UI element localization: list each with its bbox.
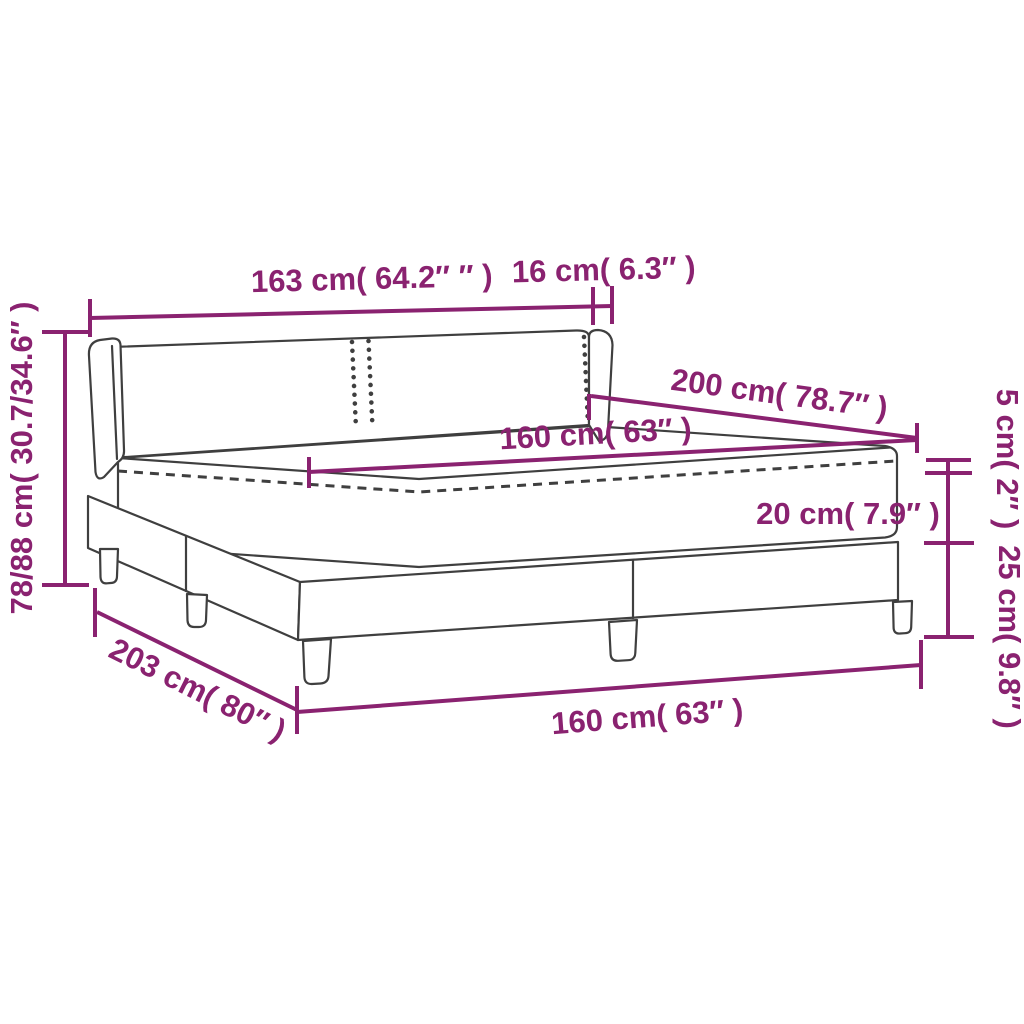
leg-back-left	[100, 549, 118, 583]
label-topper-height: 5 cm( 2″ )	[990, 389, 1024, 530]
bed-dimension-diagram: 163 cm( 64.2″ ″ ) 16 cm( 6.3″ ) 78/88 cm…	[0, 0, 1024, 1024]
label-total-height: 78/88 cm( 30.7/34.6″ )	[4, 302, 39, 615]
leg-front-right	[893, 601, 912, 634]
dim-right-ruler	[924, 460, 974, 637]
diagram-svg: 163 cm( 64.2″ ″ ) 16 cm( 6.3″ ) 78/88 cm…	[0, 0, 1024, 1024]
label-mattress-height: 20 cm( 7.9″ )	[756, 496, 940, 531]
label-total-length: 203 cm( 80″ )	[104, 631, 292, 748]
leg-front-left	[303, 639, 331, 684]
leg-front-middle	[609, 620, 637, 661]
label-bed-length: 200 cm( 78.7″ )	[669, 362, 890, 426]
label-base-leg-height: 25 cm( 9.8″ )	[992, 545, 1024, 729]
headboard-left-wing	[89, 338, 124, 478]
label-headboard-depth: 16 cm( 6.3″ )	[511, 250, 696, 290]
dim-total-height	[42, 332, 89, 585]
label-base-width: 160 cm( 63″ )	[550, 692, 744, 741]
leg-left-middle	[187, 594, 207, 627]
label-headboard-width: 163 cm( 64.2″ ″ )	[250, 258, 493, 299]
